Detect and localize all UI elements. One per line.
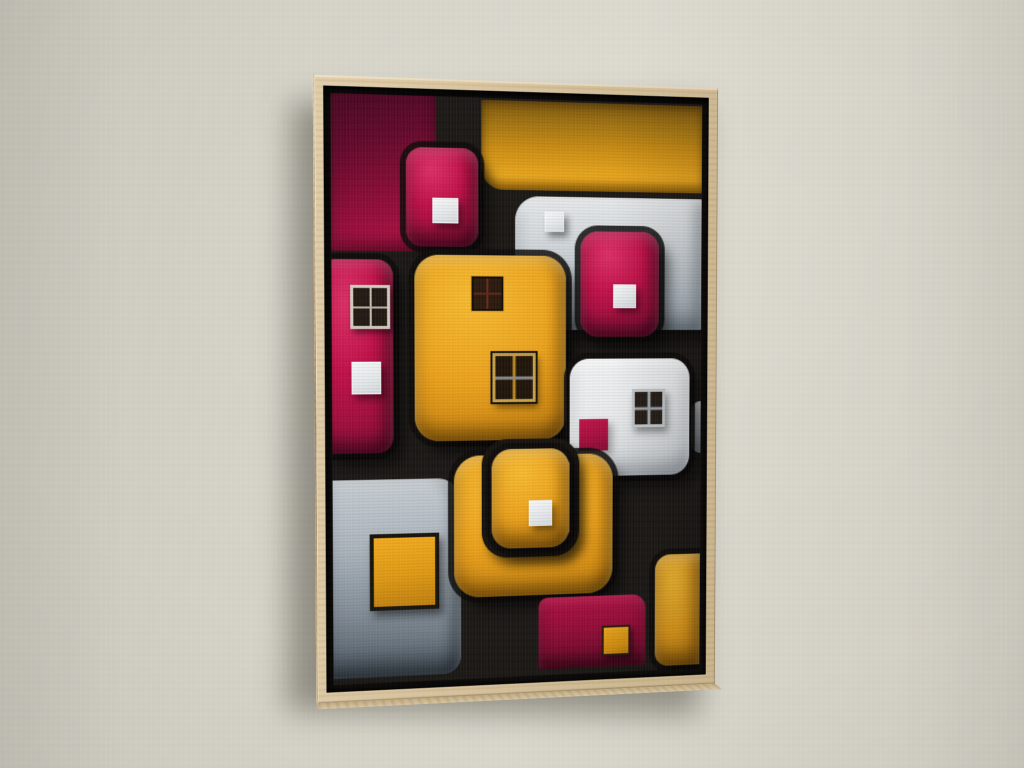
amber-house-center (414, 255, 566, 442)
magenta-block-top (406, 147, 479, 247)
framed-painting (313, 75, 718, 704)
scene (0, 0, 1024, 768)
white-square (432, 198, 458, 224)
amber-square (370, 533, 440, 612)
crimson-panel-top-left (331, 93, 437, 252)
crimson-square (579, 419, 608, 451)
silver-panel-bottom-left (331, 478, 462, 680)
small-window (472, 276, 504, 310)
magenta-panel-left (331, 259, 394, 454)
amber-nested-block (492, 448, 570, 549)
white-square (529, 500, 552, 526)
white-square (351, 362, 381, 395)
magenta-panel-bottom (538, 594, 645, 670)
window (350, 285, 390, 329)
painting-canvas (331, 93, 703, 685)
amber-panel-bottom-right (655, 553, 702, 666)
white-square (613, 284, 636, 308)
amber-panel-top-right (481, 100, 702, 194)
magenta-block-right (580, 231, 659, 337)
silver-sliver-right-edge (691, 401, 702, 453)
wall (0, 0, 1024, 768)
frame-float-gap (323, 85, 709, 692)
large-window (492, 353, 535, 402)
window (632, 389, 665, 428)
frame-front (313, 75, 718, 704)
white-square (545, 212, 565, 232)
amber-square (602, 625, 631, 656)
